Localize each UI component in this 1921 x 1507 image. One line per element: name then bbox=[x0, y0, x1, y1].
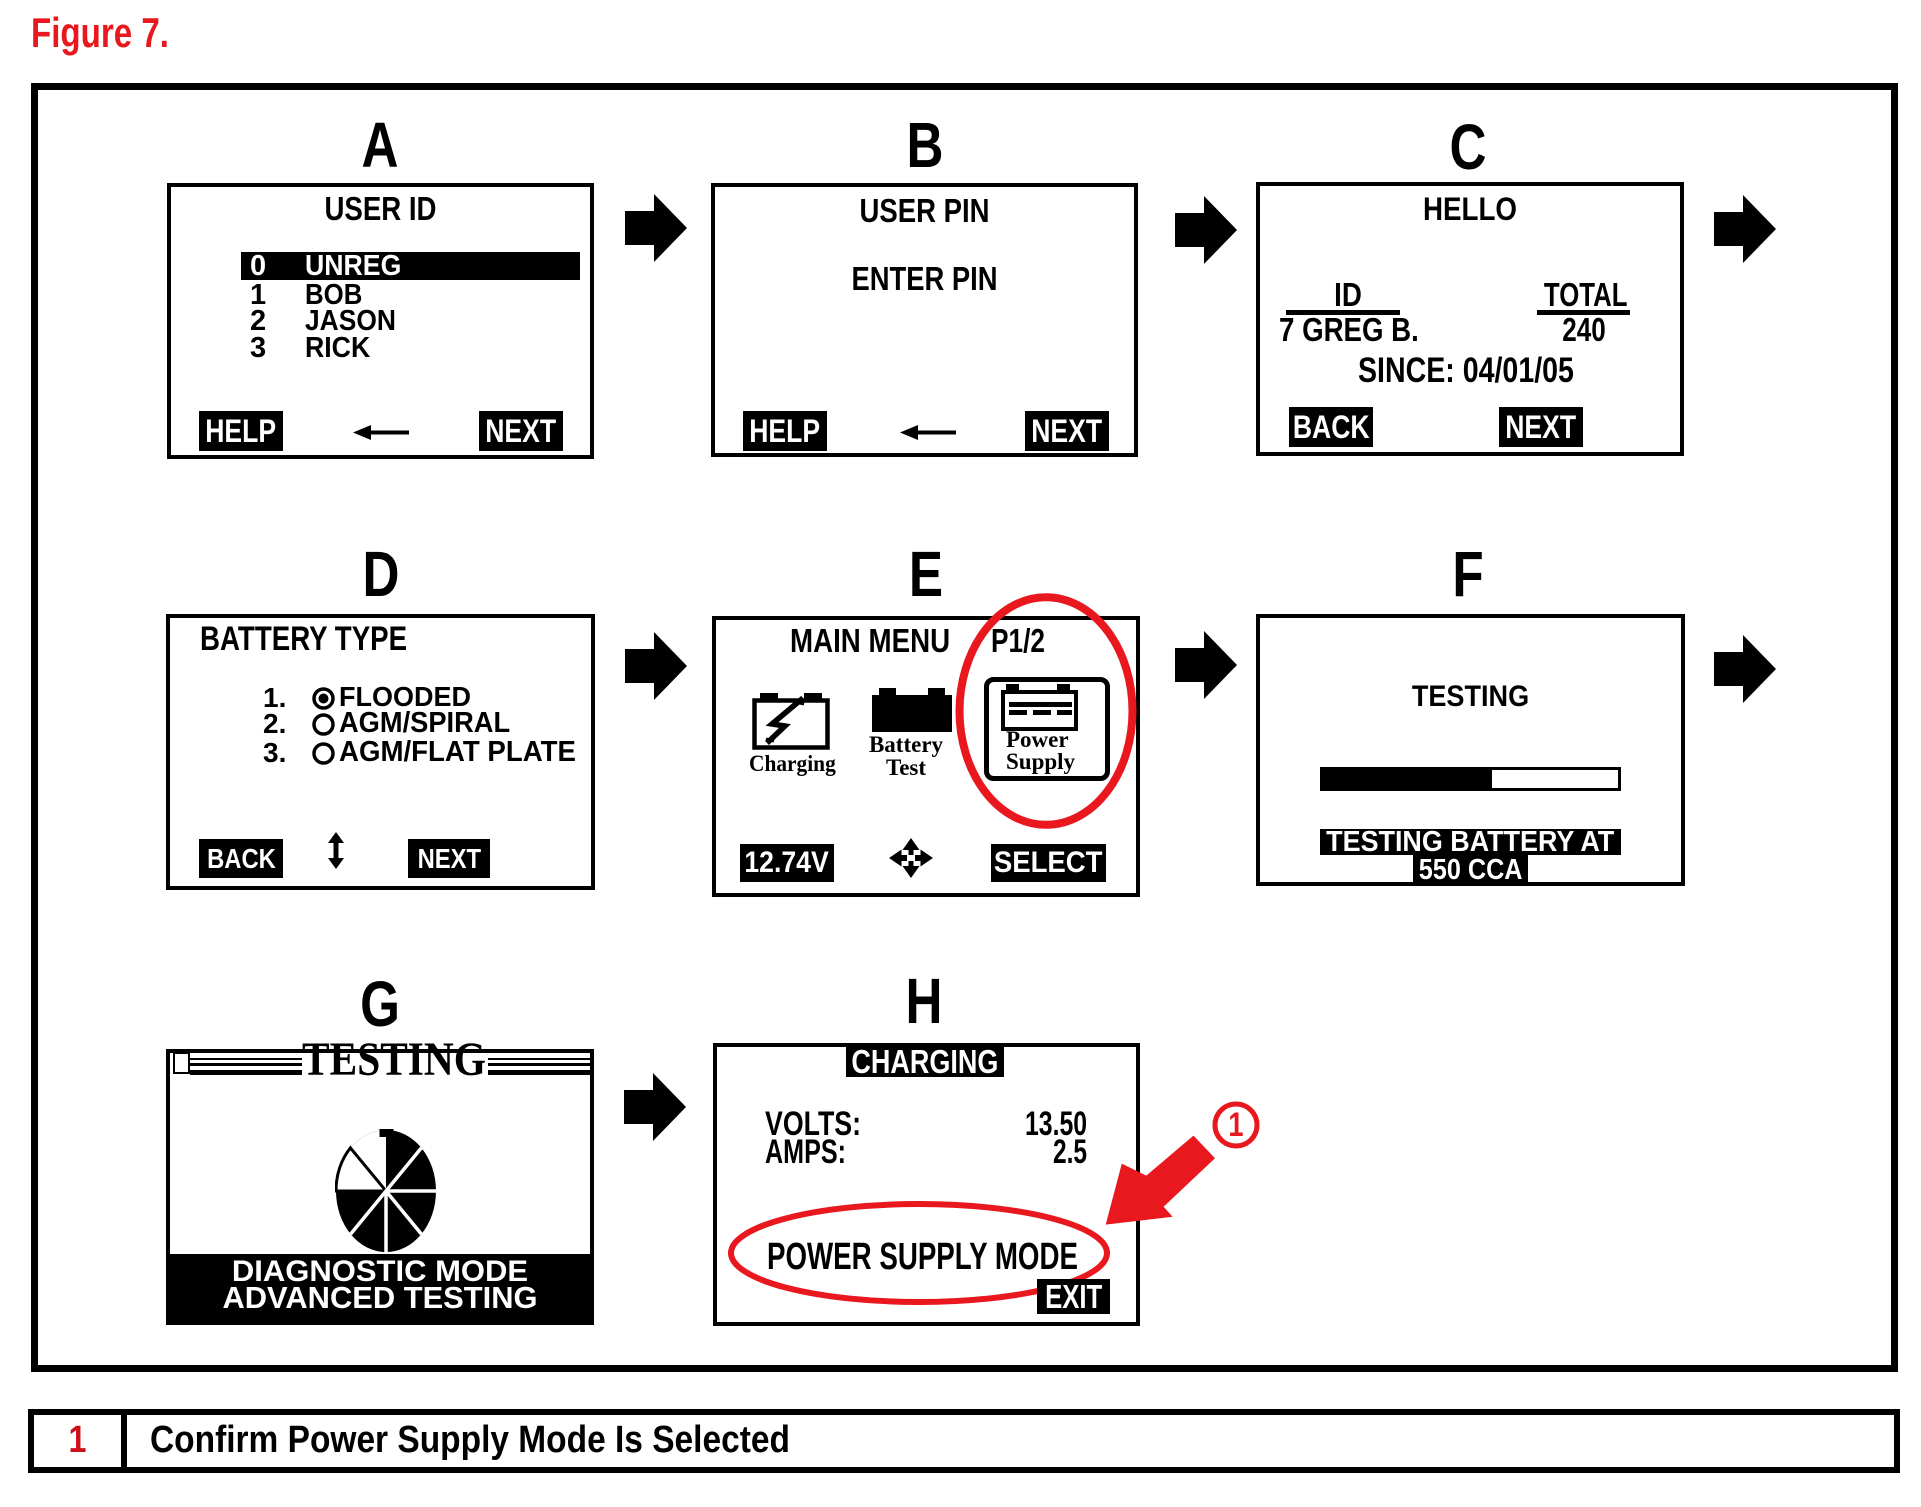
svg-text:1: 1 bbox=[1228, 1105, 1243, 1144]
